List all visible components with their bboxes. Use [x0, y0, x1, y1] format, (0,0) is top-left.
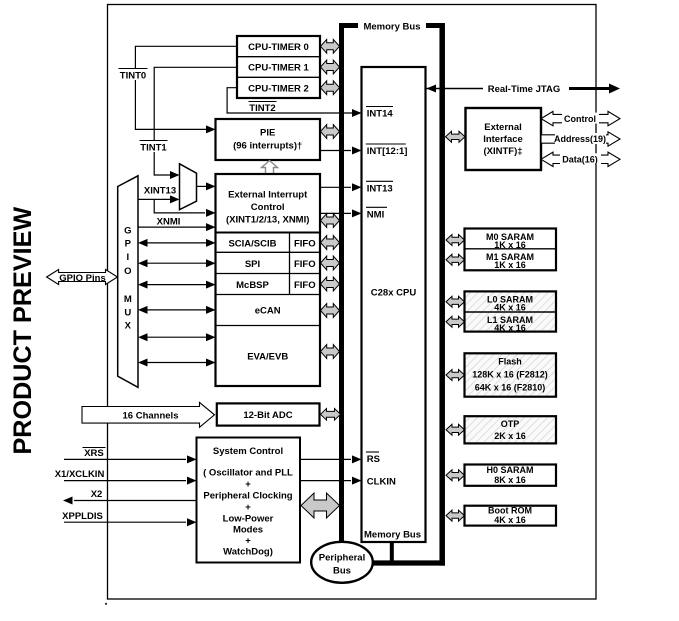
svg-text:McBSP: McBSP	[236, 280, 269, 291]
svg-text:4K x 16: 4K x 16	[494, 303, 526, 313]
svg-text:+: +	[245, 502, 251, 513]
svg-text:CPU-TIMER 0: CPU-TIMER 0	[248, 42, 309, 53]
svg-text:CLKIN: CLKIN	[367, 477, 396, 488]
svg-text:Peripheral Clocking: Peripheral Clocking	[203, 491, 292, 502]
svg-text:Low-Power: Low-Power	[223, 514, 274, 525]
svg-text:64K x 16 (F2810): 64K x 16 (F2810)	[475, 383, 546, 393]
svg-text:Interface: Interface	[483, 134, 523, 145]
svg-text:Data(16): Data(16)	[562, 155, 598, 165]
svg-text:16 Channels: 16 Channels	[123, 410, 179, 421]
svg-text:Memory Bus: Memory Bus	[363, 22, 420, 33]
svg-text:P: P	[125, 239, 132, 250]
svg-text:EVA/EVB: EVA/EVB	[247, 352, 288, 363]
svg-text:(XINT1/2/13, XNMI): (XINT1/2/13, XNMI)	[226, 215, 309, 226]
svg-text:WatchDog): WatchDog)	[223, 547, 273, 558]
svg-text:External Interrupt: External Interrupt	[228, 190, 308, 201]
svg-text:G: G	[124, 226, 131, 237]
svg-text:1K x 16: 1K x 16	[494, 240, 526, 250]
svg-text:PIE: PIE	[260, 128, 275, 139]
svg-text:SPI: SPI	[245, 259, 260, 270]
svg-text:U: U	[124, 308, 131, 319]
svg-text:FIFO: FIFO	[294, 280, 316, 291]
svg-text:M: M	[124, 294, 132, 305]
svg-text:TINT1: TINT1	[140, 143, 167, 154]
svg-text:TINT0: TINT0	[120, 71, 146, 82]
svg-text:Peripheral: Peripheral	[319, 553, 365, 564]
svg-text:SCIA/SCIB: SCIA/SCIB	[228, 238, 276, 249]
svg-text:XRS: XRS	[84, 448, 104, 459]
svg-text:O: O	[124, 266, 131, 277]
svg-text:1K x 16: 1K x 16	[494, 260, 526, 270]
svg-text:+: +	[245, 479, 251, 490]
svg-text:INT[12:1]: INT[12:1]	[367, 146, 408, 157]
svg-text:I: I	[126, 252, 129, 263]
svg-text:Control: Control	[564, 114, 596, 124]
svg-text:RS: RS	[367, 454, 380, 465]
svg-text:4K x 16: 4K x 16	[494, 515, 526, 525]
svg-text:OTP: OTP	[501, 419, 520, 429]
svg-text:Address(19): Address(19)	[554, 134, 606, 144]
svg-text:XINT13: XINT13	[144, 186, 176, 197]
svg-text:XPPLDIS: XPPLDIS	[62, 511, 103, 522]
svg-text:Flash: Flash	[498, 357, 522, 367]
svg-text:XNMI: XNMI	[157, 217, 181, 228]
svg-text:GPIO Pins: GPIO Pins	[59, 273, 105, 284]
svg-text:Modes: Modes	[233, 525, 263, 536]
svg-text:+: +	[245, 536, 251, 547]
svg-text:(96 interrupts)†: (96 interrupts)†	[233, 141, 302, 152]
svg-text:System Control: System Control	[213, 446, 283, 457]
svg-text:C28x CPU: C28x CPU	[371, 288, 417, 299]
svg-text:NMI: NMI	[367, 209, 384, 220]
svg-text:X1/XCLKIN: X1/XCLKIN	[55, 469, 105, 480]
svg-text:Control: Control	[251, 202, 285, 213]
svg-text:128K x 16 (F2812): 128K x 16 (F2812)	[472, 370, 548, 380]
svg-text:eCAN: eCAN	[255, 306, 281, 317]
svg-text:PRODUCT PREVIEW: PRODUCT PREVIEW	[9, 207, 37, 455]
svg-text:8K x 16: 8K x 16	[494, 475, 526, 485]
svg-text:4K x 16: 4K x 16	[494, 323, 526, 333]
svg-text:X: X	[125, 321, 132, 332]
svg-text:Bus: Bus	[333, 566, 351, 577]
svg-text:2K x 16: 2K x 16	[494, 431, 526, 441]
svg-text:CPU-TIMER 2: CPU-TIMER 2	[248, 83, 309, 94]
svg-text:12-Bit ADC: 12-Bit ADC	[243, 410, 292, 421]
svg-text:Memory Bus: Memory Bus	[364, 530, 421, 541]
svg-text:Real-Time JTAG: Real-Time JTAG	[488, 84, 561, 95]
svg-text:TINT2: TINT2	[249, 103, 275, 114]
svg-text:INT13: INT13	[367, 183, 393, 194]
svg-text:FIFO: FIFO	[294, 238, 316, 249]
svg-text:External: External	[484, 122, 522, 133]
svg-text:(XINTF)‡: (XINTF)‡	[483, 146, 522, 157]
svg-text:FIFO: FIFO	[294, 259, 316, 270]
svg-text:X2: X2	[91, 489, 103, 500]
svg-text:INT14: INT14	[367, 109, 394, 120]
svg-text:( Oscillator and PLL: ( Oscillator and PLL	[203, 468, 293, 479]
svg-text:H0 SARAM: H0 SARAM	[486, 465, 533, 475]
svg-text:CPU-TIMER 1: CPU-TIMER 1	[248, 63, 309, 74]
